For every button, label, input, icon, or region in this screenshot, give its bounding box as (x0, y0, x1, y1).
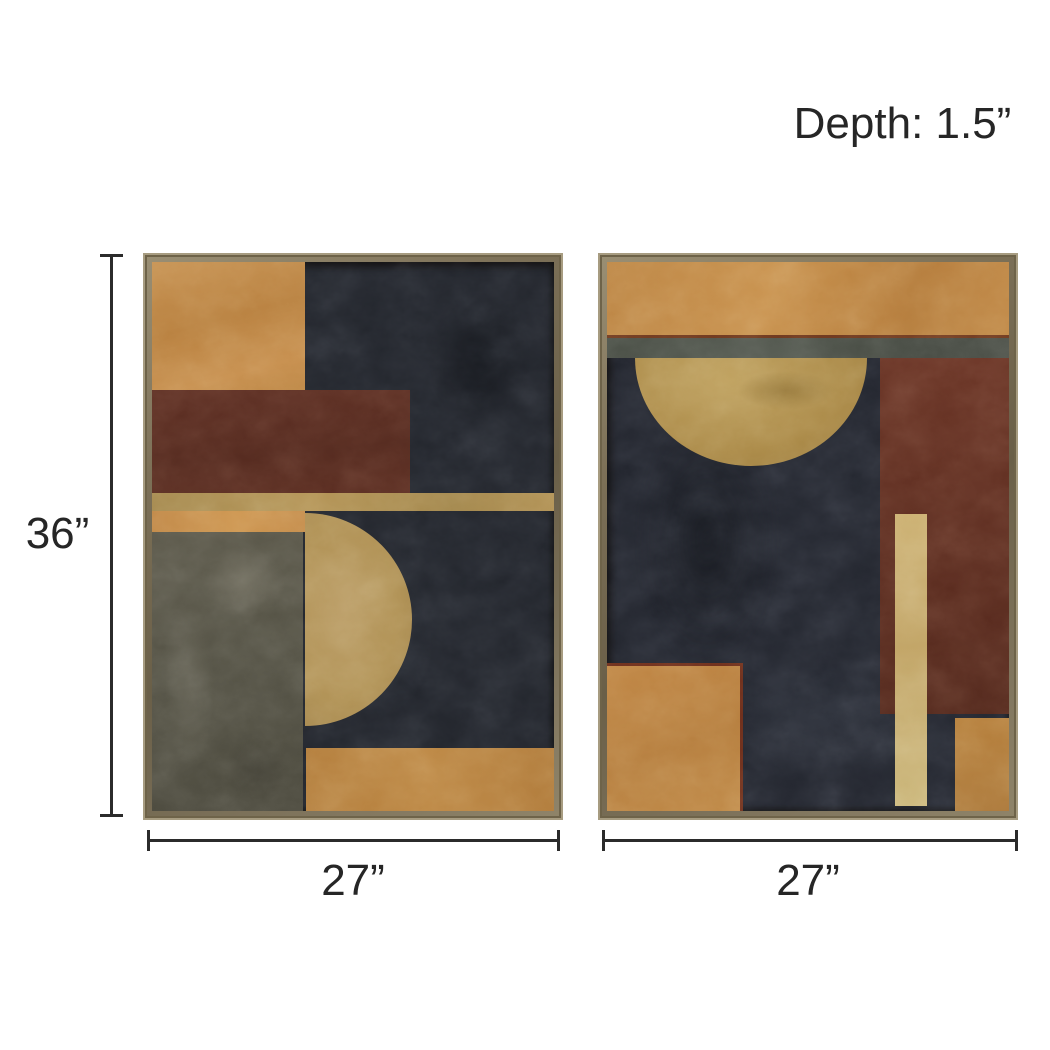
left-width-label: 27” (278, 857, 428, 905)
right-region-orange-bottom-left (607, 663, 743, 811)
left-region-olive-block (152, 532, 303, 811)
left-artwork-canvas (152, 262, 554, 811)
left-width-dimension-line (147, 839, 560, 842)
height-dimension-cap-bottom (100, 814, 123, 817)
right-region-orange-top-band (607, 262, 1009, 338)
right-artwork-frame (598, 253, 1018, 820)
right-region-orange-bottom-right (955, 718, 1009, 811)
height-dimension-line (110, 254, 113, 817)
right-width-cap-right (1015, 830, 1018, 851)
left-region-orange-top-block (152, 262, 305, 390)
height-label: 36” (15, 510, 100, 558)
left-region-orange-bottom-band (306, 748, 554, 811)
right-width-dimension-line (602, 839, 1018, 842)
right-artwork-canvas (607, 262, 1009, 811)
product-dimension-diagram: Depth: 1.5” 36” (0, 0, 1050, 1050)
left-region-maroon-block (152, 390, 410, 493)
left-region-gold-stripe (152, 493, 554, 511)
left-width-cap-right (557, 830, 560, 851)
right-width-label: 27” (733, 857, 883, 905)
left-region-orange-strip (152, 511, 305, 531)
right-region-grey-stripe (607, 338, 1009, 358)
right-region-gold-bar (895, 514, 927, 806)
depth-label: Depth: 1.5” (790, 100, 1015, 148)
left-artwork-frame (143, 253, 563, 820)
